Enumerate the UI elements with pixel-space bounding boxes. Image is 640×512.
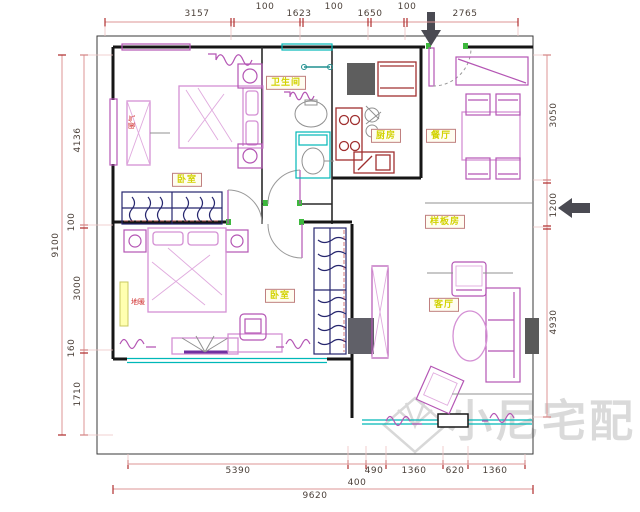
windows	[110, 44, 532, 427]
room-label-bedroom2: 卧室	[265, 289, 295, 303]
bedroom1-furniture	[122, 54, 263, 224]
curtain-symbol	[284, 92, 314, 100]
entrance-door-leaf	[429, 48, 434, 86]
dim-right-2: 4930	[549, 310, 559, 335]
dining-chair	[466, 158, 490, 179]
toilet	[296, 132, 330, 178]
dim-bottom-5: 1360	[483, 466, 508, 476]
lamp-icon	[129, 235, 141, 247]
window-step	[438, 414, 468, 427]
pillow	[188, 232, 218, 245]
nightstand	[226, 230, 248, 252]
dim-top-3: 100	[325, 2, 344, 12]
dim-top-1: 100	[256, 2, 275, 12]
bed-double	[179, 86, 263, 148]
watermark-logo-icon	[384, 398, 446, 452]
dim-left-3: 160	[67, 339, 77, 358]
room-label-model-room: 样板房	[425, 215, 465, 229]
dim-right-1: 1200	[549, 193, 559, 218]
dim-left-1: 100	[67, 213, 77, 232]
room-label-living: 客厅	[429, 298, 459, 312]
curtain-symbol	[482, 414, 514, 423]
exterior-unit	[525, 318, 539, 354]
dim-left-0: 4136	[73, 128, 83, 153]
sofa	[486, 288, 520, 382]
floor-plan-drawing	[0, 0, 640, 512]
lamp-icon	[243, 69, 257, 83]
dim-top-2: 1623	[287, 9, 312, 19]
dim-top-5: 100	[398, 2, 417, 12]
room-label-bedroom1: 卧室	[172, 173, 202, 187]
curtain-symbol	[208, 54, 252, 65]
pillow	[246, 91, 258, 115]
dim-top-6: 2765	[453, 9, 478, 19]
room-label-kitchen: 厨房	[371, 129, 401, 143]
living-furniture	[372, 262, 532, 426]
desk-chair	[240, 314, 266, 340]
window-bedroom2	[127, 359, 327, 363]
radiator-label: 暖气	[127, 115, 137, 129]
dim-left-2: 3000	[73, 276, 83, 301]
side-arrow-left-icon	[558, 198, 590, 218]
coffee-table	[453, 311, 487, 361]
dim-bottom-2: 490	[365, 466, 384, 476]
lamp-icon	[231, 235, 243, 247]
curtain-symbol	[120, 340, 156, 349]
flue-column	[347, 63, 375, 95]
floor-heating-label: 地暖	[131, 297, 145, 307]
nightstand	[124, 230, 146, 252]
kitchen-fixtures	[336, 62, 416, 173]
dim-left-4: 1710	[73, 382, 83, 407]
dim-bottom-total: 9620	[303, 491, 328, 501]
entrance-door-arc	[433, 48, 471, 86]
armchair	[452, 262, 486, 296]
desk	[228, 334, 282, 352]
floor-plan-canvas: 小尼宅配	[0, 0, 640, 512]
dim-bottom-3: 1360	[402, 466, 427, 476]
structural-column	[348, 318, 374, 354]
room-label-bathroom: 卫生间	[266, 76, 306, 90]
fridge	[378, 62, 416, 96]
dim-bottom-4: 620	[446, 466, 465, 476]
pillow	[153, 232, 183, 245]
curtain-symbol	[276, 340, 310, 349]
dim-bottom-1: 400	[348, 478, 367, 488]
dining-chair	[496, 158, 520, 179]
nightstand	[238, 64, 262, 88]
dim-right-0: 3050	[549, 103, 559, 128]
bed-double	[148, 228, 226, 312]
radiator	[120, 282, 128, 326]
bedroom2-furniture	[120, 228, 346, 354]
lamp-icon	[243, 149, 257, 163]
pillow	[246, 121, 258, 145]
bedroom1-door-arc	[228, 190, 262, 224]
room-label-dining: 餐厅	[426, 129, 456, 143]
dining-furniture	[456, 57, 528, 179]
dim-bottom-0: 5390	[226, 466, 251, 476]
dim-top-0: 3157	[185, 9, 210, 19]
dim-left-total: 9100	[51, 233, 61, 258]
dining-table	[462, 112, 520, 160]
entry-arrow-down-icon	[421, 12, 441, 46]
bathroom-door-arc	[268, 170, 300, 204]
dim-top-4: 1650	[358, 9, 383, 19]
window-left	[110, 99, 117, 165]
bedroom2-door-arc	[268, 224, 302, 258]
